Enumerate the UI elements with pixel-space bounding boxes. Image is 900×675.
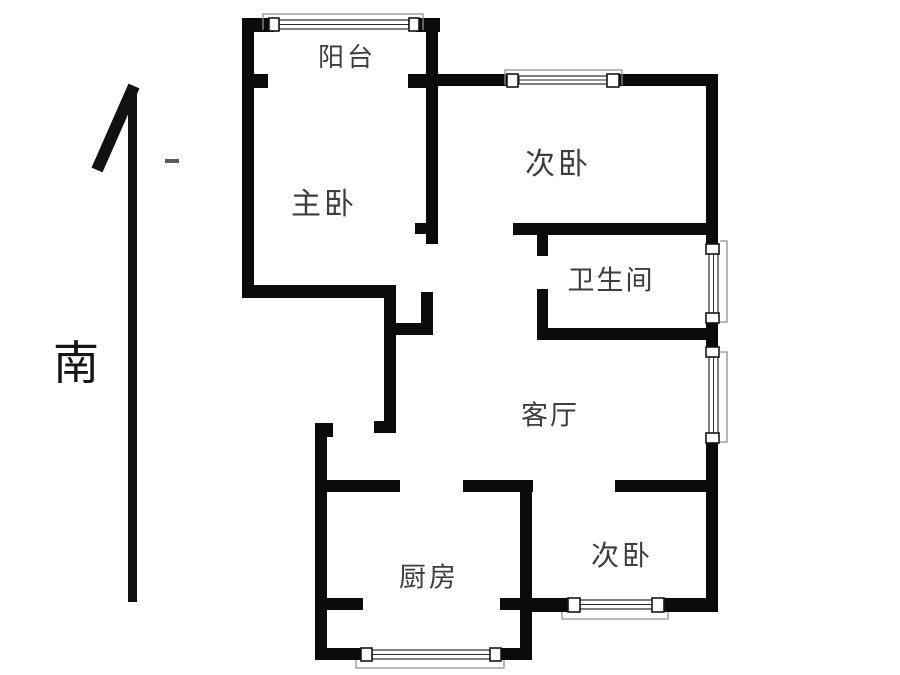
- room-label-master-bedroom: 主卧: [291, 190, 357, 220]
- living-room-window: [706, 347, 727, 443]
- room-label-bathroom: 卫生间: [568, 268, 655, 295]
- room-label-balcony: 阳台: [318, 45, 376, 71]
- bedroom-bottom-window: [562, 598, 668, 619]
- windows: [263, 14, 727, 668]
- room-label-bedroom-top: 次卧: [525, 150, 591, 180]
- room-label-kitchen: 厨房: [399, 565, 459, 592]
- floor-plan: 阳台 主卧 次卧 卫生间 客厅 厨房 次卧 南: [0, 0, 900, 675]
- kitchen-window: [356, 648, 504, 668]
- room-label-living-room: 客厅: [521, 403, 579, 430]
- room-label-bedroom-bottom: 次卧: [591, 542, 653, 570]
- bathroom-window: [706, 241, 727, 323]
- bedroom-top-window: [505, 70, 622, 87]
- south-arrow: [97, 86, 134, 602]
- compass-south-label: 南: [53, 340, 99, 386]
- balcony-window: [263, 14, 423, 31]
- dash-mark: [165, 159, 179, 163]
